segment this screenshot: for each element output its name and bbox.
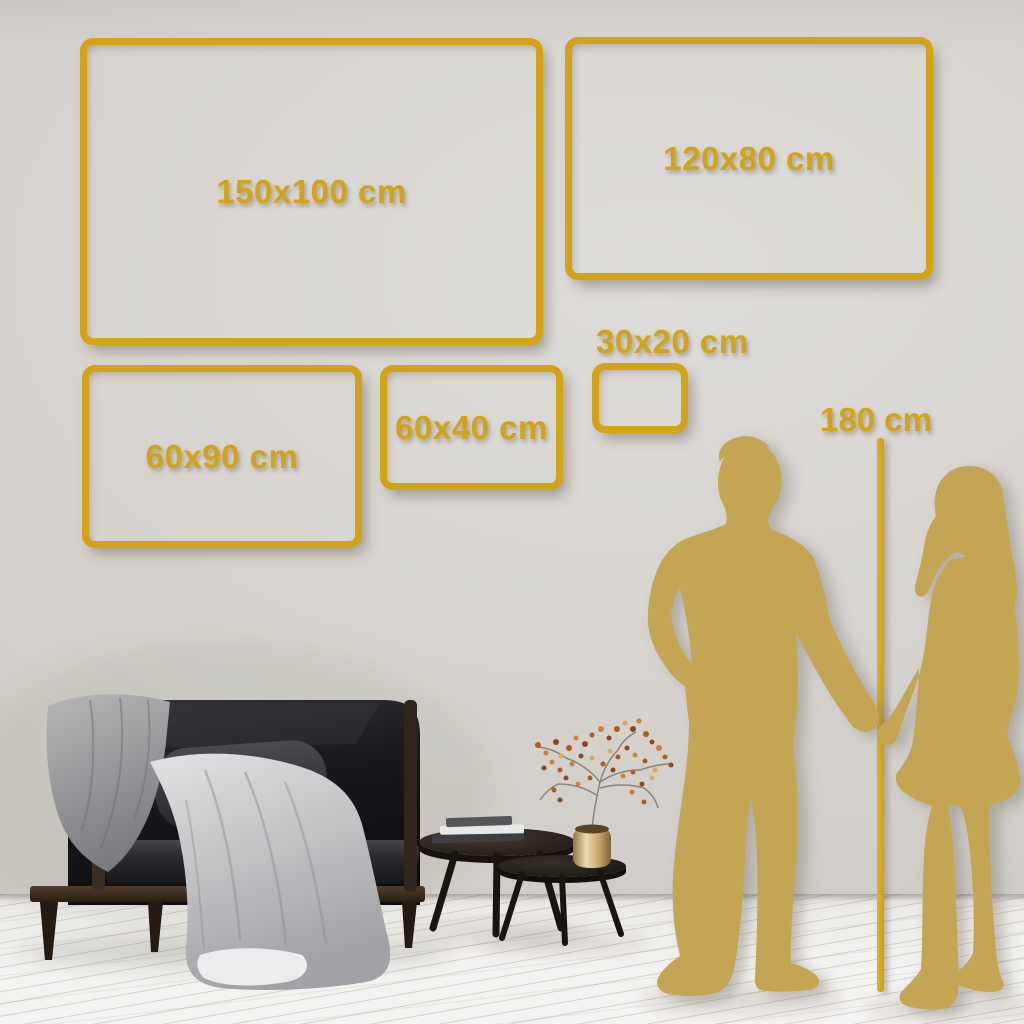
sofa-leg [402, 902, 417, 948]
woman-head [935, 474, 997, 542]
branch-berries [535, 719, 674, 805]
room-scene [0, 0, 1024, 1024]
size-guide-stage: 150x100 cm120x80 cm60x90 cm60x40 cm30x20… [0, 0, 1024, 1024]
vase [573, 825, 611, 869]
wood-arm-right [404, 700, 417, 892]
cloth-on-floor [197, 948, 307, 985]
branch [538, 732, 670, 828]
man-silhouette [648, 436, 879, 996]
woman-silhouette [877, 466, 1020, 1010]
woman-body [877, 557, 1020, 1010]
